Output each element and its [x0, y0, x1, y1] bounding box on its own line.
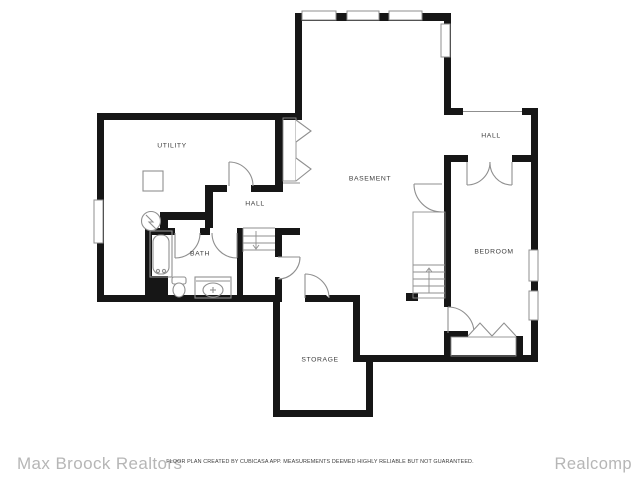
window-icon [441, 24, 450, 57]
room-label-hall-lower: HALL [245, 201, 264, 208]
double-door-icon [467, 162, 512, 185]
window-icon [529, 250, 538, 281]
window-icon [529, 291, 538, 320]
room-label-bath: BATH [190, 251, 210, 258]
bifold-door-icon [296, 120, 311, 142]
room-label-basement: BASEMENT [349, 176, 391, 183]
door-swing-icon [448, 307, 474, 333]
door-swing-icon [305, 274, 329, 298]
bedroom-closet [451, 323, 516, 356]
room-label-storage: STORAGE [301, 357, 338, 364]
room-label-utility: UTILITY [157, 143, 187, 150]
door-swing-icon [212, 233, 237, 258]
floor-plan-drawing [0, 0, 640, 480]
window-icon [389, 11, 422, 20]
disclaimer-text: FLOOR PLAN CREATED BY CUBICASA APP. MEAS… [166, 459, 473, 465]
window-icon [94, 200, 103, 243]
water-heater-icon [143, 171, 163, 191]
bifold-door-icon [492, 323, 516, 336]
wall-opening [463, 108, 522, 116]
room-label-bedroom: BEDROOM [474, 249, 513, 256]
bifold-door-icon [296, 158, 311, 181]
window-icon [347, 11, 379, 20]
bathtub-icon [150, 231, 172, 277]
brokerage-brand-text: Max Broock Realtors [17, 454, 182, 474]
door-swing-icon [229, 162, 253, 186]
stairs-up-icon [413, 212, 445, 298]
mls-brand-text: Realcomp [555, 455, 632, 474]
window-icon [302, 11, 336, 20]
door-swing-icon [414, 184, 442, 212]
door-swing-icon [278, 257, 300, 279]
toilet-icon [172, 277, 186, 297]
stairs-down-icon [243, 228, 275, 252]
floor-plan-page: UTILITY BASEMENT HALL BEDROOM HALL BATH … [0, 0, 640, 480]
sump-pump-icon [142, 212, 161, 231]
bifold-closet-left [283, 118, 311, 181]
room-label-hall-upper: HALL [481, 133, 500, 140]
masonry-block [145, 276, 168, 302]
sink-vanity-icon [195, 277, 231, 298]
